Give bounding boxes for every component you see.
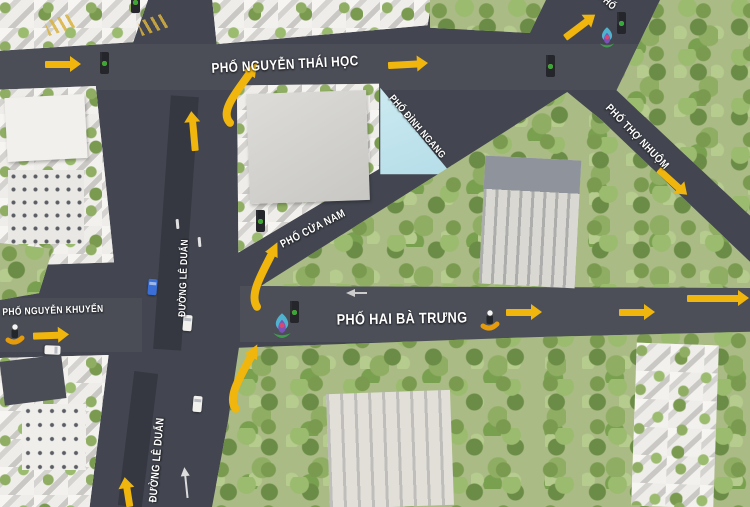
lane-dash-marking: [198, 237, 202, 247]
flow-arrow-up-right: [560, 8, 600, 44]
car-icon: [44, 345, 60, 355]
motorbike-icon: [479, 308, 501, 332]
flow-arrow-up: [183, 110, 202, 151]
flow-arrow-curved-up-right: [226, 348, 258, 410]
lane-arrow-marking: [178, 465, 193, 500]
flow-arrow-right: [506, 304, 542, 320]
flower-decoration-icon: [271, 312, 293, 343]
flower-decoration-icon: [598, 26, 616, 52]
flow-arrow-right: [619, 304, 655, 320]
flow-arrow-right: [33, 326, 70, 343]
traffic-map: PHỐ NGUYỄN THÁI HỌC PHỐ HAI BÀ TRƯNG PHỐ…: [0, 0, 750, 507]
flow-arrow-right: [687, 290, 749, 306]
lane-dash-marking: [176, 219, 180, 229]
motorbike-icon: [4, 322, 26, 346]
flow-arrow-up: [117, 476, 137, 507]
flow-arrow-right: [388, 55, 429, 73]
car-icon: [147, 279, 157, 296]
flow-arrow-curved-up-right: [218, 66, 258, 124]
flow-arrow-down-right: [654, 163, 693, 200]
car-icon: [182, 315, 192, 332]
crosswalk-marking: [137, 13, 168, 36]
flow-arrow-right: [45, 56, 81, 72]
crosswalk-marking: [44, 13, 75, 36]
lane-arrow-marking: [345, 288, 369, 298]
car-icon: [192, 396, 202, 413]
flow-arrow-curved-up-right: [248, 246, 278, 308]
